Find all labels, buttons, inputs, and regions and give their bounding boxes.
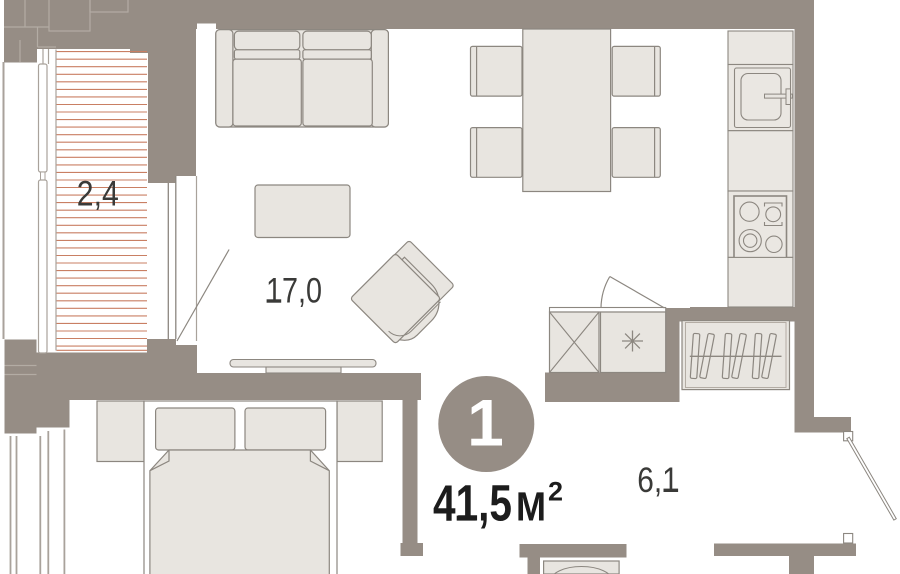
svg-text:2,4: 2,4	[77, 174, 119, 213]
svg-text:41,5: 41,5	[433, 475, 512, 532]
svg-text:2: 2	[548, 476, 563, 506]
svg-text:6,1: 6,1	[637, 461, 679, 500]
svg-text:М: М	[516, 484, 546, 530]
svg-text:17,0: 17,0	[266, 272, 322, 311]
svg-text:1: 1	[467, 386, 504, 460]
